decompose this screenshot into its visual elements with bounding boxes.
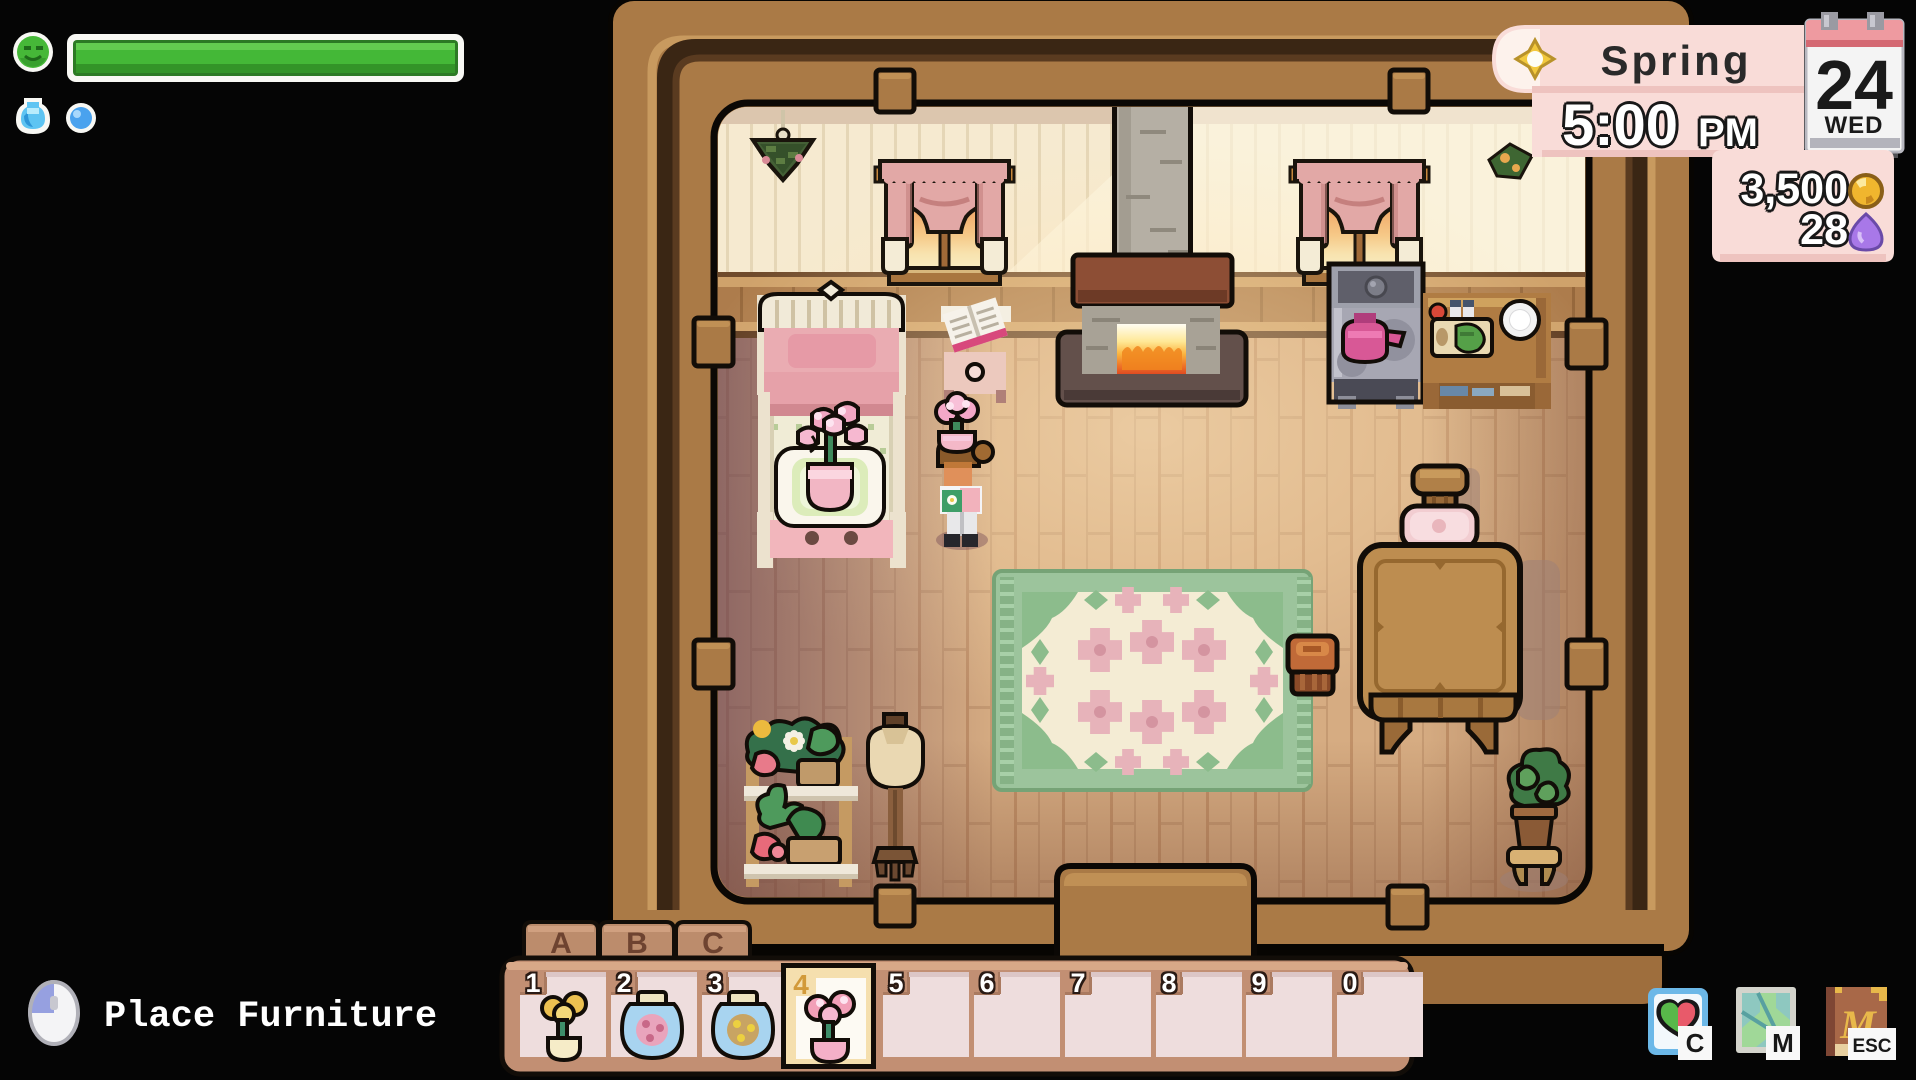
svg-text:C: C (702, 927, 724, 960)
svg-text:9: 9 (1251, 968, 1266, 998)
svg-text:Place Furniture: Place Furniture (104, 996, 437, 1038)
svg-text:0: 0 (1342, 968, 1357, 998)
svg-text:PM: PM (1698, 111, 1758, 155)
svg-text:7: 7 (1070, 968, 1085, 998)
svg-text:5: 5 (888, 968, 903, 998)
svg-text:6: 6 (979, 968, 994, 998)
svg-text:4: 4 (793, 969, 809, 1000)
svg-text:ESC: ESC (1852, 1036, 1891, 1057)
svg-text:8: 8 (1161, 968, 1176, 998)
svg-text:5:00: 5:00 (1562, 93, 1678, 158)
svg-text:3: 3 (707, 968, 722, 998)
svg-text:Spring: Spring (1601, 37, 1752, 84)
svg-text:M: M (1772, 1028, 1794, 1058)
svg-text:A: A (550, 927, 572, 960)
svg-text:2: 2 (616, 968, 631, 998)
svg-text:1: 1 (525, 968, 540, 998)
svg-text:B: B (626, 927, 648, 960)
svg-text:28: 28 (1800, 206, 1848, 254)
svg-text:WED: WED (1825, 112, 1884, 139)
svg-text:C: C (1686, 1028, 1705, 1058)
